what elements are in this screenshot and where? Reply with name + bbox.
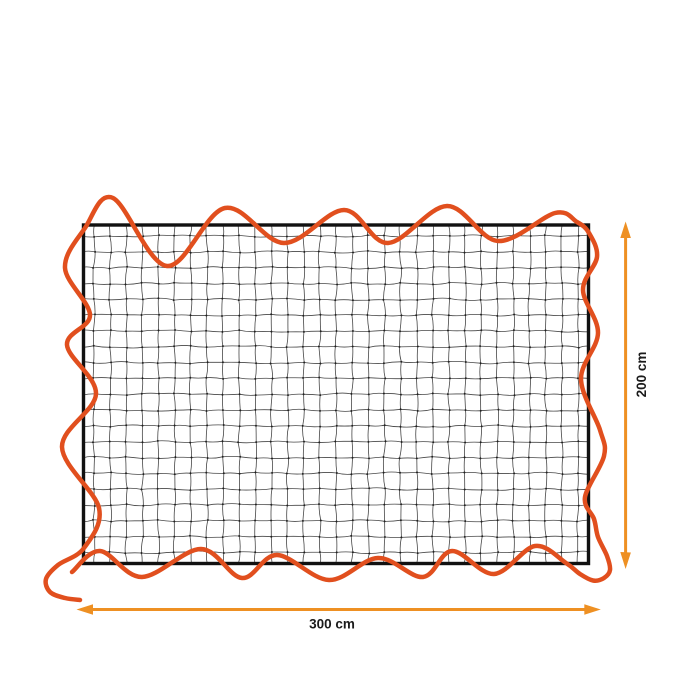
svg-text:200 cm: 200 cm — [634, 352, 649, 398]
svg-text:300 cm: 300 cm — [309, 617, 355, 632]
